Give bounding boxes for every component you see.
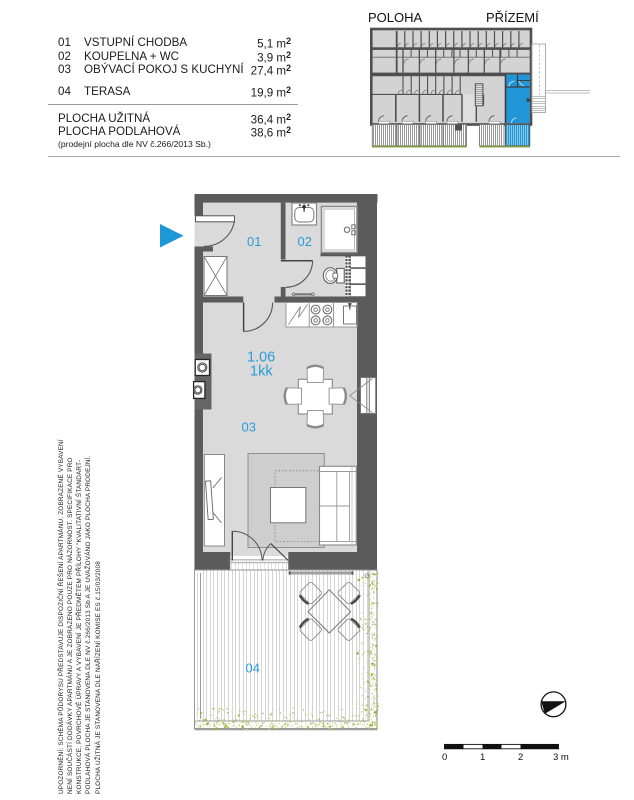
svg-text:G: G [364, 573, 369, 580]
svg-text:0: 0 [442, 752, 447, 763]
svg-text:1kk: 1kk [250, 364, 273, 380]
svg-text:03: 03 [242, 420, 256, 435]
svg-text:3 m: 3 m [553, 752, 569, 763]
svg-text:2: 2 [518, 752, 523, 763]
svg-text:01: 01 [247, 234, 261, 249]
svg-text:02: 02 [298, 234, 312, 249]
svg-text:1: 1 [480, 752, 485, 763]
svg-text:04: 04 [246, 661, 260, 676]
